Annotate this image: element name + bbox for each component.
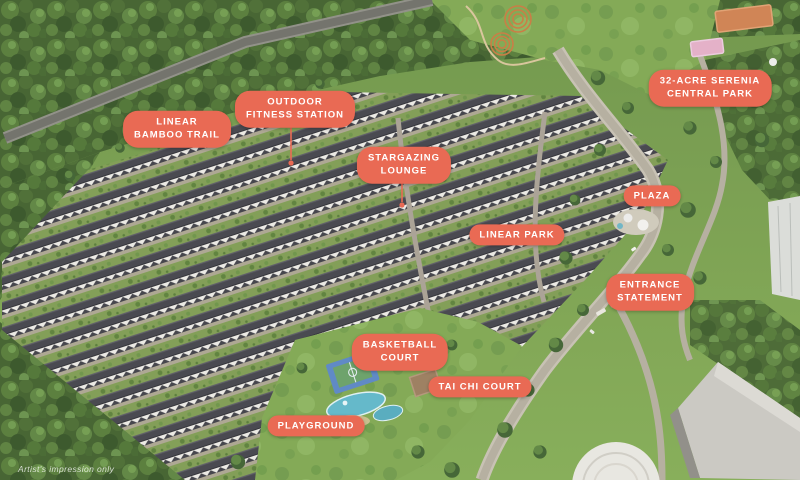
callout-plaza: PLAZA [624,185,681,206]
callout-line: LOUNGE [368,165,440,178]
leader-dot [399,202,404,207]
callout-basketball-court: BASKETBALL COURT [352,334,448,371]
callout-line: COURT [363,352,437,365]
callout-outdoor-fitness-station: OUTDOOR FITNESS STATION [235,91,355,128]
callout-linear-bamboo-trail: LINEAR BAMBOO TRAIL [123,111,231,148]
callout-playground: PLAYGROUND [268,415,365,436]
callout-line: LINEAR [134,116,220,129]
callout-line: PLAZA [634,189,671,202]
callout-line: LINEAR PARK [479,228,554,241]
callout-line: 32-ACRE SERENIA [660,75,761,88]
callout-line: STATEMENT [617,292,683,305]
callout-line: PLAYGROUND [278,419,355,432]
callout-entrance-statement: ENTRANCE STATEMENT [606,274,694,311]
callout-line: TAI CHI COURT [438,380,521,393]
artist-impression-watermark: Artist's impression only [18,464,114,474]
callout-stargazing-lounge: STARGAZING LOUNGE [357,147,451,184]
callout-tai-chi-court: TAI CHI COURT [428,376,531,397]
callout-line: FITNESS STATION [246,109,344,122]
callout-line: BAMBOO TRAIL [134,129,220,142]
callout-linear-park: LINEAR PARK [469,224,564,245]
callout-line: BASKETBALL [363,339,437,352]
callout-line: OUTDOOR [246,96,344,109]
callout-line: STARGAZING [368,152,440,165]
leader-dot [288,160,293,165]
callout-serenia-central-park: 32-ACRE SERENIA CENTRAL PARK [649,70,772,107]
callout-line: ENTRANCE [617,279,683,292]
callout-line: CENTRAL PARK [660,88,761,101]
masterplan-render: LINEAR BAMBOO TRAIL OUTDOOR FITNESS STAT… [0,0,800,480]
